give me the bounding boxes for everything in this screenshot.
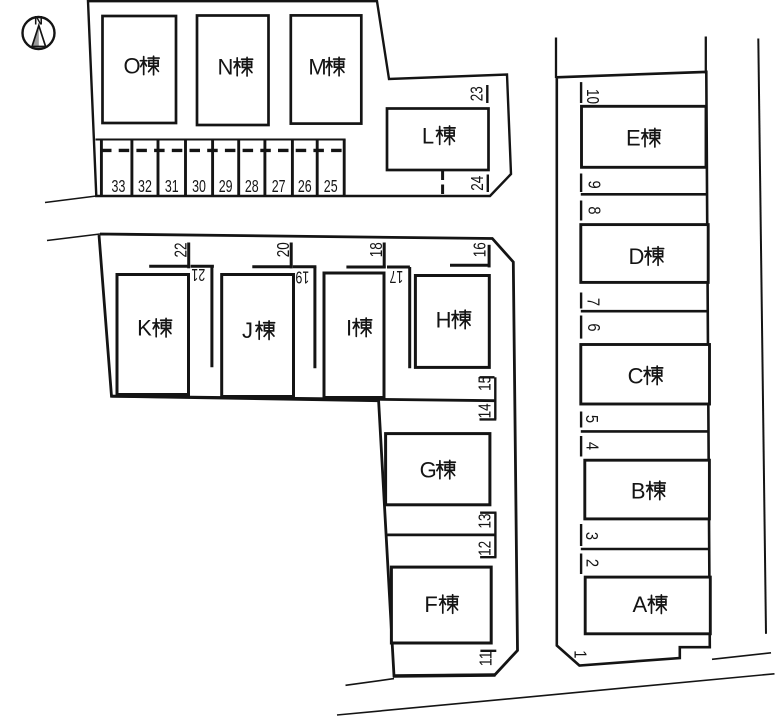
svg-text:20: 20 <box>273 242 293 257</box>
svg-text:O: O <box>123 54 140 79</box>
svg-text:11: 11 <box>476 651 496 666</box>
svg-text:M: M <box>308 55 326 80</box>
svg-text:A: A <box>632 592 647 617</box>
svg-text:H: H <box>436 307 452 332</box>
svg-text:N: N <box>34 14 43 28</box>
svg-text:J: J <box>242 318 253 343</box>
svg-text:D: D <box>629 244 645 269</box>
svg-text:4: 4 <box>583 442 603 451</box>
svg-text:7: 7 <box>584 298 604 306</box>
svg-text:B: B <box>631 478 646 503</box>
svg-text:K: K <box>137 316 152 341</box>
svg-text:22: 22 <box>171 243 191 258</box>
svg-text:L: L <box>422 123 434 148</box>
svg-text:C: C <box>628 363 644 388</box>
svg-text:33: 33 <box>112 176 126 196</box>
svg-text:17: 17 <box>390 267 404 287</box>
svg-text:31: 31 <box>165 176 179 196</box>
svg-text:9: 9 <box>585 181 605 189</box>
svg-text:N: N <box>218 55 234 80</box>
svg-text:1: 1 <box>571 650 591 658</box>
svg-text:E: E <box>626 126 641 151</box>
svg-text:6: 6 <box>584 323 604 331</box>
svg-text:I: I <box>346 315 352 340</box>
svg-text:5: 5 <box>582 415 602 423</box>
svg-text:3: 3 <box>582 532 602 540</box>
svg-text:10: 10 <box>583 89 603 104</box>
svg-text:13: 13 <box>475 514 495 529</box>
svg-text:30: 30 <box>192 176 206 196</box>
svg-text:G: G <box>420 458 437 483</box>
svg-text:23: 23 <box>466 86 486 101</box>
svg-text:14: 14 <box>474 403 494 418</box>
svg-text:18: 18 <box>366 242 386 257</box>
svg-text:F: F <box>424 592 437 617</box>
svg-text:24: 24 <box>467 175 487 190</box>
svg-text:28: 28 <box>245 176 259 196</box>
svg-text:26: 26 <box>298 176 312 196</box>
svg-text:12: 12 <box>475 541 495 556</box>
svg-text:8: 8 <box>585 206 605 214</box>
svg-text:19: 19 <box>296 268 310 288</box>
svg-text:2: 2 <box>583 559 603 567</box>
svg-text:25: 25 <box>324 176 338 196</box>
svg-text:15: 15 <box>474 376 494 391</box>
svg-text:16: 16 <box>469 242 489 257</box>
svg-text:29: 29 <box>219 176 233 196</box>
svg-text:21: 21 <box>191 265 205 285</box>
svg-text:27: 27 <box>272 176 286 196</box>
svg-text:32: 32 <box>138 176 152 196</box>
